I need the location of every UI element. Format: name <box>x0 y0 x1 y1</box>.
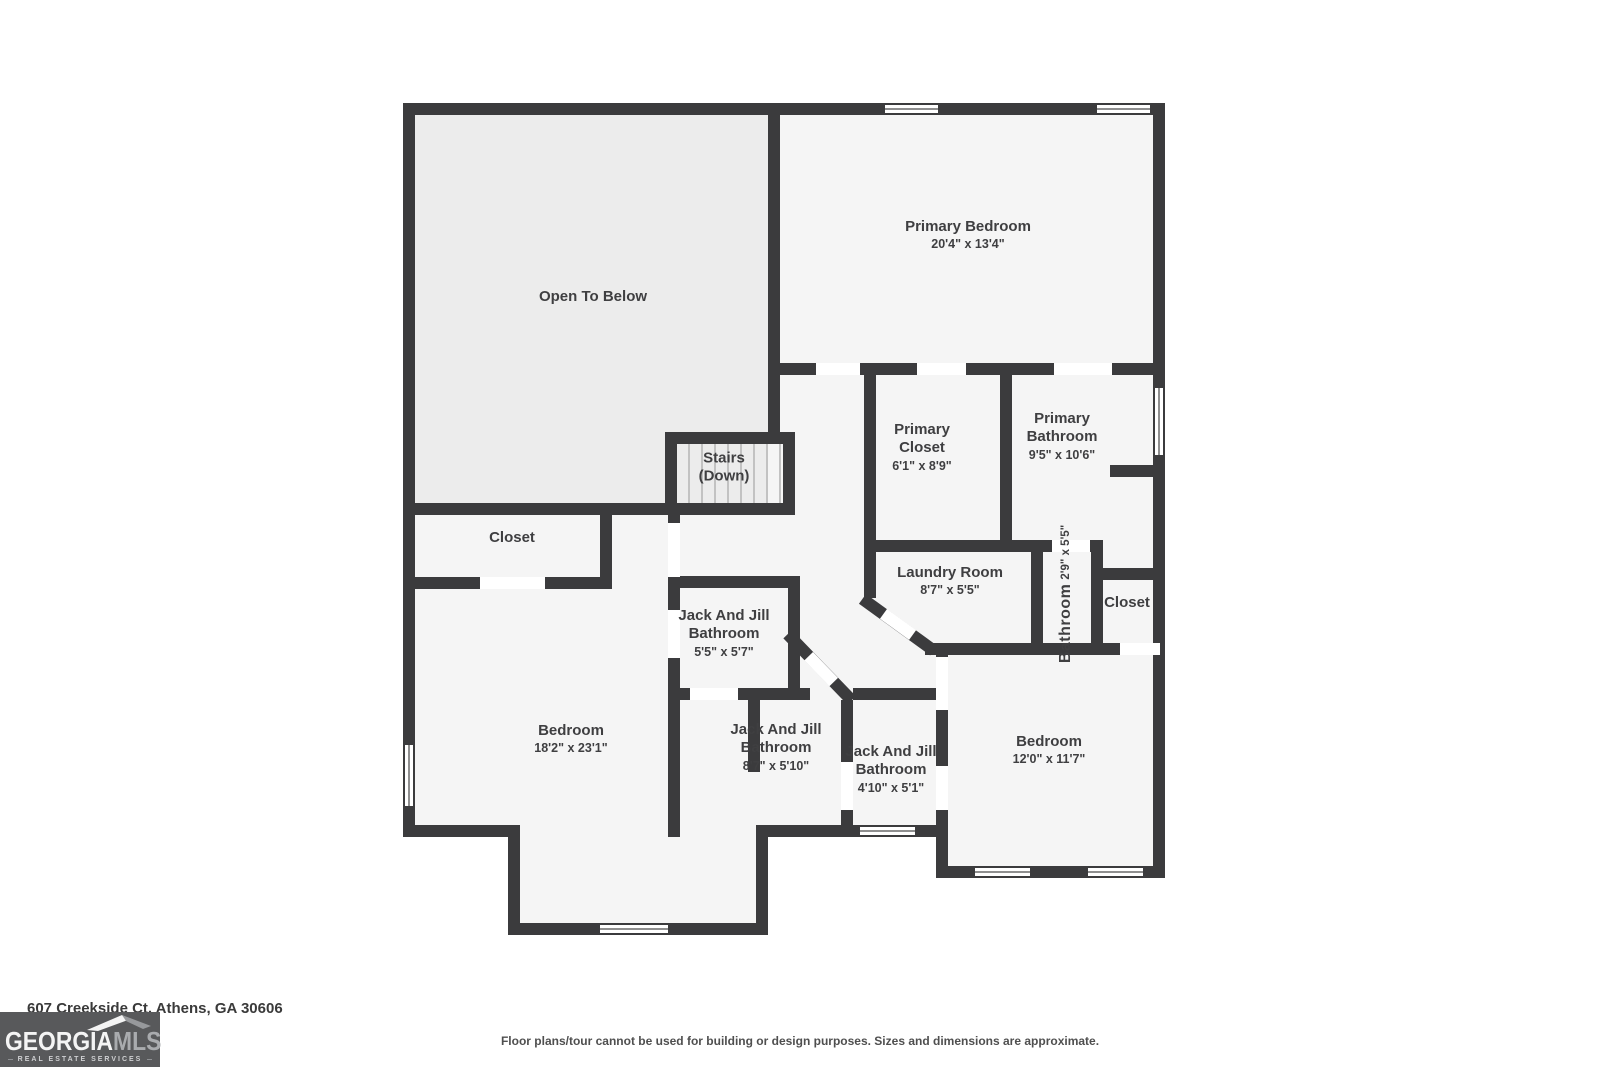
room-label-bedroom: Bedroom 18'2" x 23'1" <box>491 722 651 758</box>
disclaimer-text: Floor plans/tour cannot be used for buil… <box>0 1034 1600 1048</box>
room-name: Laundry Room <box>865 564 1035 582</box>
room-dimensions: 9'5" x 10'6" <box>1007 447 1117 465</box>
wall <box>783 432 795 515</box>
room-label-open-to-below: Open To Below <box>493 288 693 306</box>
window <box>885 103 938 115</box>
room-dimensions: 5'5" x 5'7" <box>676 644 772 662</box>
wall <box>403 103 1165 115</box>
door-opening <box>936 657 948 710</box>
room-label-stairs: Stairs (Down) <box>679 450 769 487</box>
room-name: Primary Closet <box>876 421 968 458</box>
georgia-mls-logo: GEORGIAMLS REAL ESTATE SERVICES <box>0 1012 160 1067</box>
room-label-primary-closet: Primary Closet 6'1" x 8'9" <box>876 421 968 475</box>
logo-wordmark: GEORGIAMLS <box>5 1026 161 1057</box>
room-name: Jack And Jill Bathroom <box>676 607 772 644</box>
window <box>1088 866 1143 878</box>
room-fill <box>948 825 1153 866</box>
room-label-primary-bedroom: Primary Bedroom 20'4" x 13'4" <box>853 218 1083 254</box>
room-name: Bedroom <box>969 733 1129 751</box>
wall <box>768 115 780 440</box>
room-name: Bedroom <box>491 722 651 740</box>
window <box>403 745 415 806</box>
logo-tagline: REAL ESTATE SERVICES <box>8 1056 152 1063</box>
room-label-closet: Closet <box>1082 594 1172 612</box>
room-label-bedroom: Bedroom 12'0" x 11'7" <box>969 733 1129 769</box>
wall <box>1153 103 1165 878</box>
wall <box>403 103 415 837</box>
wall <box>668 576 800 588</box>
room-name: Open To Below <box>493 288 693 306</box>
room-dimensions: 12'0" x 11'7" <box>969 751 1129 769</box>
room-label-closet: Closet <box>462 529 562 547</box>
window <box>1097 103 1150 115</box>
room-name: Jack And Jill Bathroom <box>843 743 939 780</box>
wall <box>1103 568 1153 580</box>
room-label-jack-and-jill-bathroom: Jack And Jill Bathroom 8'7" x 5'10" <box>728 721 824 775</box>
room-name: Stairs (Down) <box>679 450 769 487</box>
door-opening <box>1054 363 1112 375</box>
room-dimensions: 18'2" x 23'1" <box>491 740 651 758</box>
wall <box>665 432 677 515</box>
door-opening <box>917 363 966 375</box>
window <box>975 866 1030 878</box>
wall <box>756 825 768 935</box>
wall <box>768 825 948 837</box>
door-opening <box>1120 643 1160 655</box>
wall <box>853 688 948 700</box>
room-dimensions: 6'1" x 8'9" <box>876 458 968 476</box>
window <box>1153 388 1165 455</box>
room-dimensions: 4'10" x 5'1" <box>843 780 939 798</box>
logo-mls-text: MLS <box>113 1026 161 1056</box>
door-opening <box>690 688 738 700</box>
room-dimensions: 20'4" x 13'4" <box>853 236 1083 254</box>
room-dimensions: 8'7" x 5'5" <box>865 582 1035 600</box>
room-name: Closet <box>1082 594 1172 612</box>
window <box>600 923 668 935</box>
room-name: Bathroom <box>1056 584 1076 664</box>
floor-plan: Open To Below Primary Bedroom 20'4" x 13… <box>0 0 1600 1067</box>
window <box>860 825 915 837</box>
wall <box>403 503 795 515</box>
room-dimensions: 2'9" x 5'5" <box>1058 525 1074 580</box>
room-fill <box>520 825 756 923</box>
room-name: Primary Bathroom <box>1007 410 1117 447</box>
room-label-primary-bathroom: Primary Bathroom 9'5" x 10'6" <box>1007 410 1117 464</box>
wall <box>508 825 520 935</box>
room-name: Primary Bedroom <box>853 218 1083 236</box>
logo-georgia-text: GEORGIA <box>5 1026 113 1056</box>
door-opening <box>668 523 680 577</box>
room-label-laundry-room: Laundry Room 8'7" x 5'5" <box>865 564 1035 600</box>
wall <box>665 432 795 444</box>
wall <box>403 825 520 837</box>
room-label-jack-and-jill-bathroom: Jack And Jill Bathroom 4'10" x 5'1" <box>843 743 939 797</box>
wall <box>1110 465 1153 477</box>
room-label-bathroom: Bathroom2'9" x 5'5" <box>1056 525 1076 663</box>
room-name: Jack And Jill Bathroom <box>728 721 824 758</box>
door-opening <box>480 577 545 589</box>
room-label-jack-and-jill-bathroom: Jack And Jill Bathroom 5'5" x 5'7" <box>676 607 772 661</box>
room-name: Closet <box>462 529 562 547</box>
door-opening <box>816 363 860 375</box>
room-dimensions: 8'7" x 5'10" <box>728 758 824 776</box>
